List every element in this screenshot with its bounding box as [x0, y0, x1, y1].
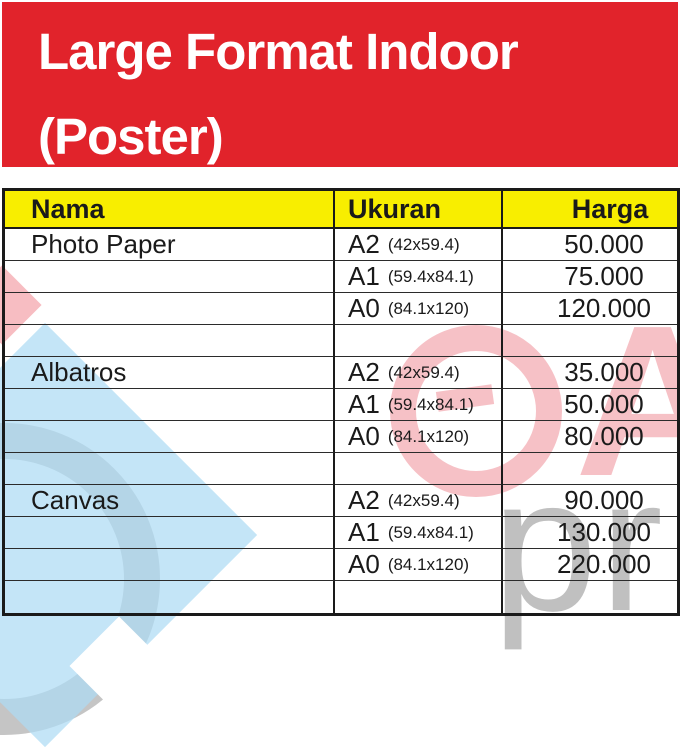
size-cell: A1 (59.4x84.1) [335, 261, 503, 293]
product-name-cell [5, 421, 335, 453]
product-name-cell [5, 261, 335, 293]
price-cell: 75.000 [503, 261, 677, 293]
product-name-cell [5, 549, 335, 581]
product-name-cell: Albatros [5, 357, 335, 389]
page-title: Large Format Indoor [38, 16, 678, 87]
product-name-cell [5, 581, 335, 613]
price-cell: 50.000 [503, 389, 677, 421]
size-code: A0 [348, 421, 380, 452]
column-header-ukuran: Ukuran [335, 191, 503, 229]
size-code: A1 [348, 389, 380, 420]
size-cell [335, 581, 503, 613]
size-code: A2 [348, 485, 380, 516]
price-cell [503, 453, 677, 485]
size-code: A1 [348, 261, 380, 292]
poster-canvas: { "banner": { "title_line1": "Large Form… [0, 0, 680, 680]
size-dimensions: (42x59.4) [388, 235, 460, 255]
column-header-nama: Nama [5, 191, 335, 229]
size-cell: A2 (42x59.4) [335, 229, 503, 261]
size-cell: A0 (84.1x120) [335, 549, 503, 581]
price-cell: 120.000 [503, 293, 677, 325]
price-cell: 50.000 [503, 229, 677, 261]
size-dimensions: (42x59.4) [388, 363, 460, 383]
size-cell [335, 325, 503, 357]
size-cell: A1 (59.4x84.1) [335, 389, 503, 421]
price-cell: 35.000 [503, 357, 677, 389]
column-header-harga: Harga [503, 191, 677, 229]
size-code: A2 [348, 229, 380, 260]
product-name-cell [5, 325, 335, 357]
product-name-cell [5, 389, 335, 421]
size-cell [335, 453, 503, 485]
price-table: Nama Ukuran Harga Photo Paper A2 (42x59.… [2, 188, 680, 616]
size-dimensions: (59.4x84.1) [388, 395, 474, 415]
product-name-cell [5, 293, 335, 325]
price-cell: 80.000 [503, 421, 677, 453]
size-dimensions: (59.4x84.1) [388, 523, 474, 543]
price-cell: 130.000 [503, 517, 677, 549]
product-name-cell [5, 453, 335, 485]
size-dimensions: (84.1x120) [388, 427, 469, 447]
price-cell [503, 581, 677, 613]
price-cell: 220.000 [503, 549, 677, 581]
product-name-cell [5, 517, 335, 549]
size-cell: A1 (59.4x84.1) [335, 517, 503, 549]
size-code: A2 [348, 357, 380, 388]
price-cell [503, 325, 677, 357]
size-cell: A0 (84.1x120) [335, 421, 503, 453]
product-name-cell: Photo Paper [5, 229, 335, 261]
size-dimensions: (59.4x84.1) [388, 267, 474, 287]
product-name-cell: Canvas [5, 485, 335, 517]
price-cell: 90.000 [503, 485, 677, 517]
size-dimensions: (84.1x120) [388, 555, 469, 575]
size-code: A0 [348, 549, 380, 580]
size-cell: A0 (84.1x120) [335, 293, 503, 325]
header-banner: Large Format Indoor (Poster) [2, 2, 678, 167]
size-code: A1 [348, 517, 380, 548]
size-cell: A2 (42x59.4) [335, 485, 503, 517]
size-dimensions: (42x59.4) [388, 491, 460, 511]
size-code: A0 [348, 293, 380, 324]
page-subtitle: (Poster) [38, 101, 678, 172]
size-dimensions: (84.1x120) [388, 299, 469, 319]
size-cell: A2 (42x59.4) [335, 357, 503, 389]
